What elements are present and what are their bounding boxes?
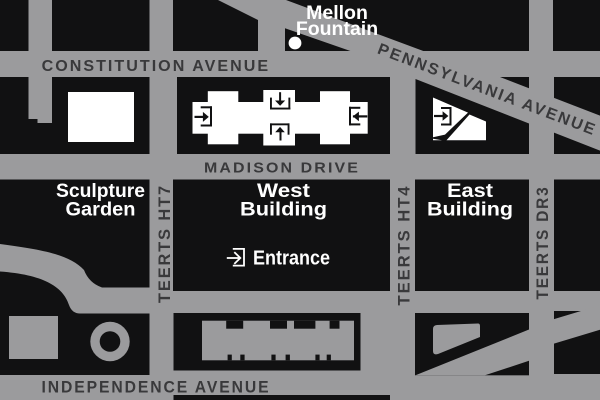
svg-text:INDEPENDENCE AVENUE: INDEPENDENCE AVENUE xyxy=(42,378,271,396)
svg-text:MADISON DRIVE: MADISON DRIVE xyxy=(204,160,360,177)
svg-text:TEERTS DR3: TEERTS DR3 xyxy=(533,186,552,300)
svg-text:CONSTITUTION AVENUE: CONSTITUTION AVENUE xyxy=(42,58,271,75)
svg-text:Garden: Garden xyxy=(66,200,136,221)
svg-text:Building: Building xyxy=(427,200,513,221)
svg-text:TEERTS HT4: TEERTS HT4 xyxy=(394,185,413,306)
svg-text:TEERTS HT7: TEERTS HT7 xyxy=(155,184,174,303)
svg-text:Fountain: Fountain xyxy=(296,18,378,40)
svg-text:Building: Building xyxy=(240,200,327,221)
svg-text:Entrance: Entrance xyxy=(253,247,330,270)
